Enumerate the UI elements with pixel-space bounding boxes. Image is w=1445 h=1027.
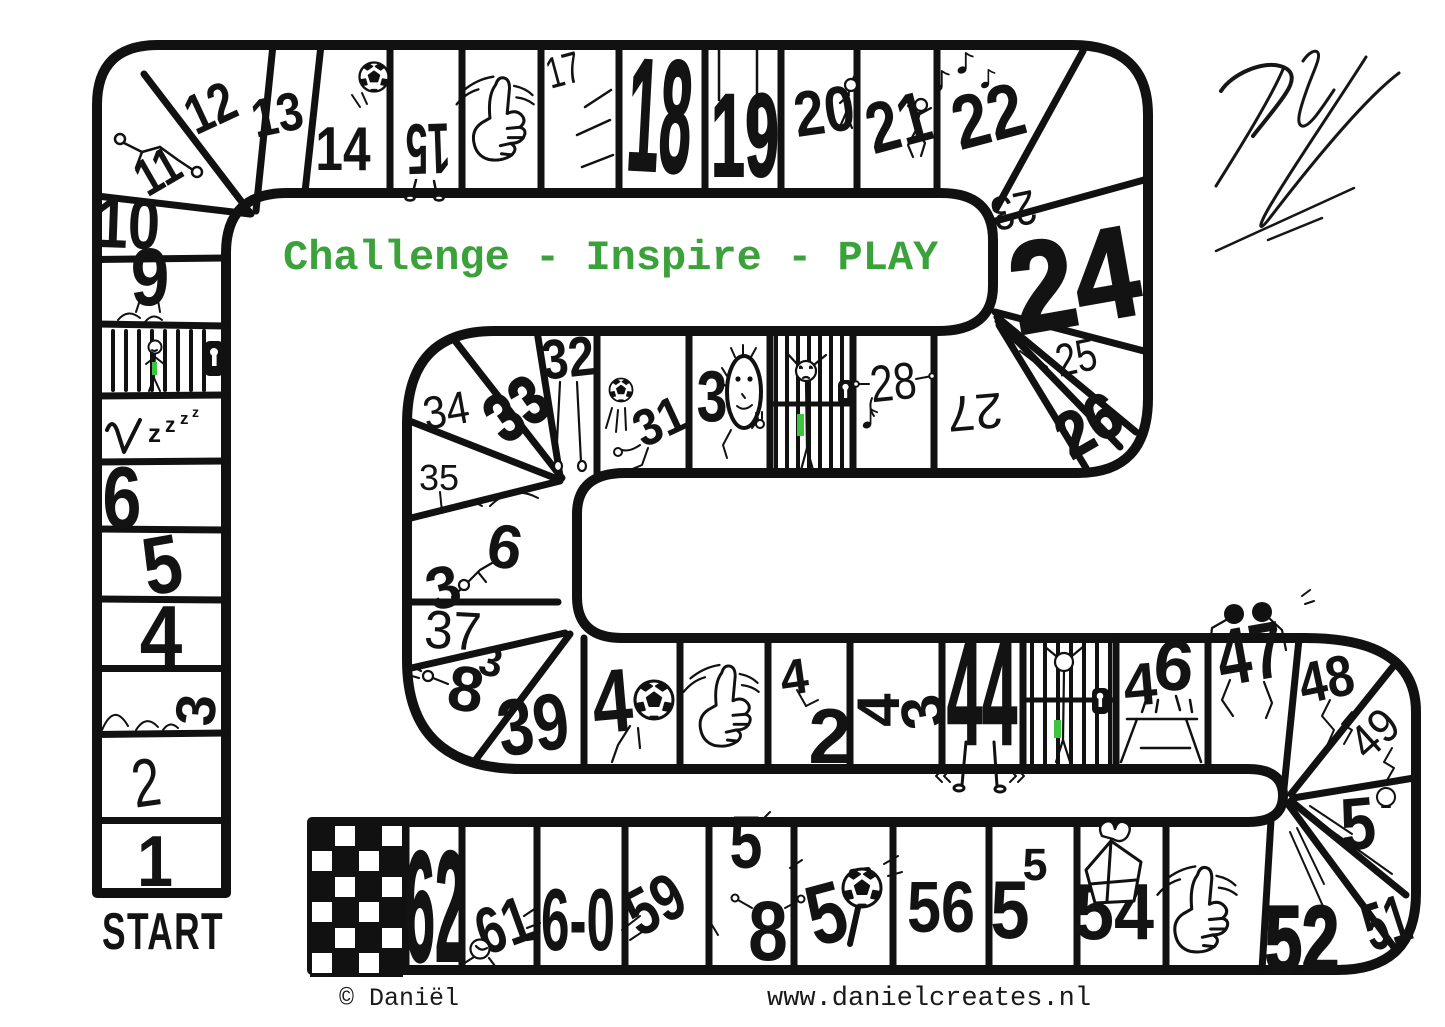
- svg-text:© Daniël: © Daniël: [339, 984, 459, 1013]
- svg-text:1: 1: [137, 821, 173, 902]
- svg-text:Challenge - Inspire - PLAY: Challenge - Inspire - PLAY: [283, 234, 939, 282]
- svg-text:14: 14: [315, 114, 370, 184]
- svg-text:15: 15: [405, 107, 452, 189]
- svg-text:6: 6: [1150, 624, 1197, 707]
- svg-text:17: 17: [541, 43, 587, 99]
- svg-text:18: 18: [623, 26, 696, 207]
- svg-text:13: 13: [246, 80, 308, 150]
- svg-text:12: 12: [174, 69, 246, 147]
- svg-text:39: 39: [492, 676, 575, 774]
- svg-text:z: z: [165, 414, 176, 437]
- svg-text:6-0: 6-0: [541, 870, 615, 969]
- svg-text:51: 51: [1353, 879, 1420, 966]
- svg-text:START: START: [102, 903, 224, 960]
- svg-text:z: z: [180, 409, 189, 428]
- svg-text:5: 5: [1022, 839, 1047, 890]
- svg-text:8: 8: [748, 883, 788, 978]
- svg-text:47: 47: [1210, 603, 1291, 703]
- svg-text:6: 6: [482, 511, 528, 585]
- svg-text:19: 19: [711, 69, 779, 201]
- svg-text:34: 34: [419, 381, 473, 440]
- svg-text:27: 27: [945, 382, 1005, 443]
- svg-text:z: z: [148, 418, 161, 448]
- svg-text:62: 62: [404, 820, 466, 996]
- svg-text:2: 2: [127, 743, 166, 822]
- svg-text:5: 5: [1337, 781, 1379, 867]
- svg-text:www.danielcreates.nl: www.danielcreates.nl: [767, 984, 1091, 1014]
- svg-text:21: 21: [857, 75, 940, 169]
- svg-text:28: 28: [867, 350, 919, 413]
- svg-text:6: 6: [102, 448, 141, 546]
- svg-text:z: z: [192, 404, 199, 420]
- svg-text:4: 4: [776, 647, 812, 706]
- svg-text:3: 3: [163, 692, 228, 729]
- svg-text:52: 52: [1265, 887, 1339, 992]
- svg-text:44: 44: [947, 610, 1017, 777]
- svg-text:5: 5: [730, 802, 763, 885]
- svg-text:32: 32: [539, 325, 598, 393]
- svg-text:56: 56: [907, 868, 975, 948]
- svg-text:4: 4: [588, 650, 637, 754]
- svg-text:35: 35: [419, 457, 459, 498]
